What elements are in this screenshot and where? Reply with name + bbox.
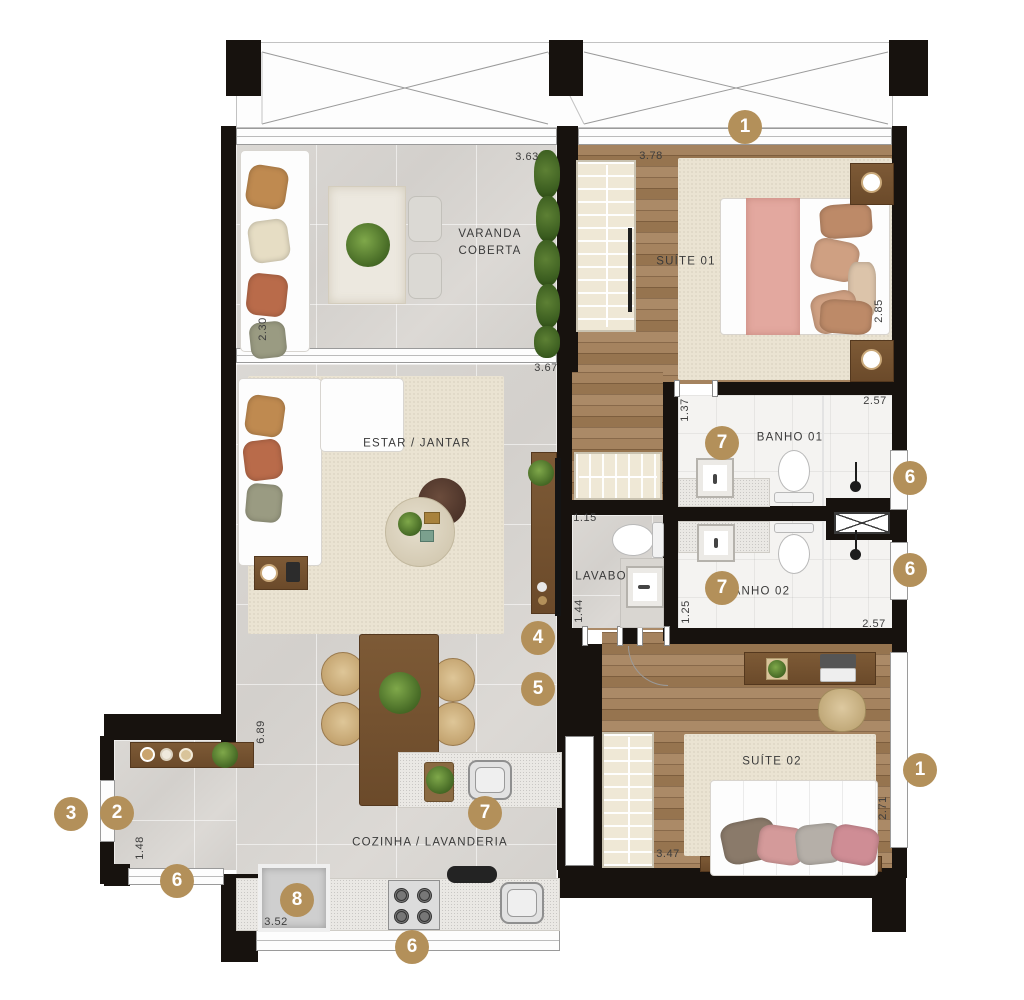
dimension-text: 2.57 <box>863 395 886 407</box>
legend-marker-6: 6 <box>893 461 927 495</box>
wall-wing-corner <box>104 864 130 886</box>
hedge-plant <box>534 240 560 286</box>
bowl <box>160 748 173 761</box>
suite02-desk <box>744 652 876 685</box>
dimension-text: 2.85 <box>873 299 885 322</box>
room-label-lavabo: LAVABO <box>575 568 627 585</box>
legend-marker-3: 3 <box>54 797 88 831</box>
door-jamb <box>664 626 670 646</box>
centerpiece-plant <box>379 672 421 714</box>
wall-banho02-bottom <box>668 628 905 644</box>
suite02-wardrobe <box>602 732 654 868</box>
legend-marker-6: 6 <box>160 864 194 898</box>
room-label-varanda: VARANDA COBERTA <box>458 226 521 261</box>
dimension-text: 2.30 <box>257 317 269 340</box>
decor-books <box>424 512 440 524</box>
dimension-text: 1.25 <box>680 600 692 623</box>
island-sink <box>468 760 512 800</box>
hedge-plant <box>536 284 560 328</box>
pillow <box>245 272 289 318</box>
wall-left <box>221 126 236 746</box>
hedge-plant <box>534 326 560 358</box>
faucet-icon <box>713 474 717 484</box>
decor-dish <box>260 564 278 582</box>
lavabo-toilet-tank <box>652 522 664 558</box>
dimension-text: 3.67 <box>534 362 557 374</box>
dimension-text: 1.44 <box>573 599 585 622</box>
dimension-text: 1.48 <box>134 836 146 859</box>
kitchen-sink <box>500 882 544 924</box>
faucet-icon <box>638 585 650 589</box>
banho01-toilet <box>778 450 810 492</box>
lavabo-toilet <box>612 524 654 556</box>
door-jamb <box>617 626 623 646</box>
door-jamb <box>582 626 588 646</box>
decor-knob <box>537 582 547 592</box>
pillow <box>242 438 285 482</box>
legend-marker-1: 1 <box>728 110 762 144</box>
legend-marker-1: 1 <box>903 753 937 787</box>
shower-glass <box>822 395 824 506</box>
wall-wing-top <box>104 714 236 740</box>
faucet-icon <box>714 538 718 548</box>
bed-runner <box>746 198 800 335</box>
wall-bottom-right-step <box>872 868 906 932</box>
shower-head-icon <box>850 481 861 492</box>
desk-chair <box>818 688 866 732</box>
dimension-text: 3.52 <box>264 916 287 928</box>
burner-icon <box>394 909 409 924</box>
wall-banho01-top <box>716 382 905 395</box>
wall-varanda-suite01 <box>557 126 578 372</box>
wall-wing-left <box>100 736 114 782</box>
legend-marker-7: 7 <box>468 796 502 830</box>
bowl <box>140 747 155 762</box>
dimension-text: 6.89 <box>255 720 267 743</box>
suite01-wardrobe <box>576 160 636 332</box>
hall-closet <box>574 452 662 500</box>
table-plant <box>398 512 422 536</box>
laptop-keyboard <box>820 668 856 682</box>
floor-plan: VARANDA COBERTA SUÍTE 01 ESTAR / JANTAR … <box>0 0 1024 1000</box>
clock-icon <box>861 172 882 193</box>
legend-marker-2: 2 <box>100 796 134 830</box>
legend-marker-4: 4 <box>521 621 555 655</box>
dimension-text: 2.71 <box>877 796 889 819</box>
room-label-cozinha: COZINHA / LAVANDERIA <box>352 834 508 851</box>
table-plant <box>346 223 390 267</box>
desk-plant <box>768 660 786 678</box>
varanda-stool <box>408 196 442 242</box>
clock-icon <box>861 349 882 370</box>
varanda-top-window <box>236 128 557 145</box>
bowl <box>179 748 193 762</box>
burner-icon <box>394 888 409 903</box>
banho02-toilet <box>778 534 810 574</box>
suite02-door-panel <box>565 736 594 866</box>
decor-knob <box>538 596 547 605</box>
room-label-suite02: SUÍTE 02 <box>742 753 801 770</box>
varanda-stool <box>408 253 442 299</box>
legend-marker-7: 7 <box>705 426 739 460</box>
wardrobe-handle <box>628 228 632 312</box>
console-plant <box>528 460 554 486</box>
pillow <box>819 202 873 240</box>
column <box>889 40 928 96</box>
room-label-banho01: BANHO 01 <box>757 429 823 446</box>
shaft-vent-box <box>834 512 890 534</box>
door-jamb <box>712 380 718 397</box>
island-plant <box>426 766 454 794</box>
banho01-toilet-tank <box>774 492 814 503</box>
door-jamb <box>637 626 643 646</box>
pillow <box>243 394 286 439</box>
column <box>549 40 583 96</box>
door-jamb <box>674 380 680 397</box>
shower-glass <box>822 521 824 628</box>
banho02-toilet-tank <box>774 523 814 533</box>
wall-lavabo-bottom <box>557 628 585 644</box>
legend-marker-7: 7 <box>705 571 739 605</box>
dimension-text: 3.78 <box>639 150 662 162</box>
dimension-text: 3.63 <box>515 151 538 163</box>
suite02-window <box>890 652 908 848</box>
dimension-text: 1.15 <box>573 512 596 524</box>
dimension-text: 1.37 <box>679 398 691 421</box>
pillow <box>819 298 873 336</box>
dimension-text: 3.47 <box>656 848 679 860</box>
pillow <box>246 217 291 264</box>
legend-marker-6: 6 <box>893 553 927 587</box>
decor-books <box>420 530 434 542</box>
burner-icon <box>417 909 432 924</box>
pillow <box>244 483 283 524</box>
shelf-plant <box>212 742 238 768</box>
legend-marker-5: 5 <box>521 672 555 706</box>
dimension-text: 2.57 <box>862 618 885 630</box>
shower-head-icon <box>850 549 861 560</box>
room-label-suite01: SUÍTE 01 <box>656 253 715 270</box>
legend-marker-8: 8 <box>280 883 314 917</box>
burner-icon <box>417 888 432 903</box>
pillow <box>244 163 290 211</box>
legend-marker-6: 6 <box>395 930 429 964</box>
speaker <box>286 562 300 582</box>
column <box>226 40 261 96</box>
tv-screen <box>555 458 561 616</box>
room-label-estar: ESTAR / JANTAR <box>363 435 471 452</box>
hedge-plant <box>536 196 560 242</box>
laptop-screen <box>820 654 856 668</box>
cooktop-stove <box>388 880 440 930</box>
range-pot <box>447 866 497 883</box>
